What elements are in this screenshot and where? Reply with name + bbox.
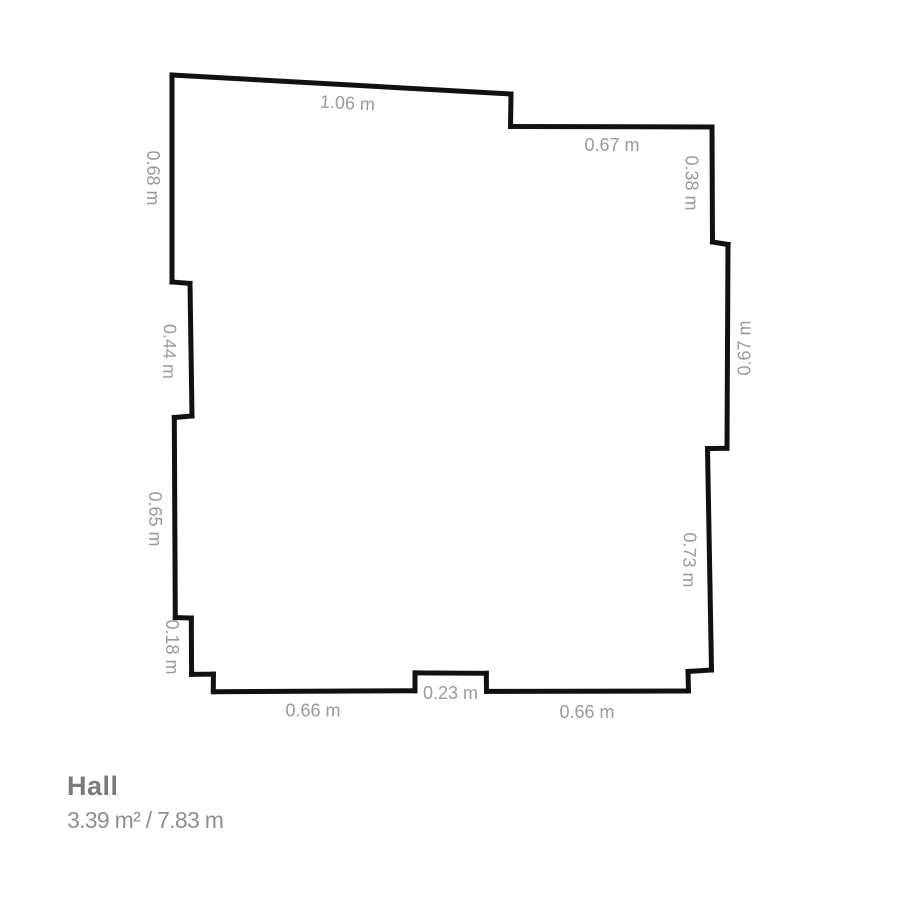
svg-text:0.65 m: 0.65 m (145, 491, 165, 546)
svg-text:0.38 m: 0.38 m (682, 155, 702, 210)
svg-text:0.66 m: 0.66 m (559, 702, 614, 722)
svg-text:0.44 m: 0.44 m (159, 324, 180, 379)
svg-text:0.23 m: 0.23 m (423, 683, 478, 703)
svg-text:Hall: Hall (67, 771, 119, 801)
svg-text:0.67 m: 0.67 m (584, 135, 639, 155)
svg-text:0.18 m: 0.18 m (162, 619, 182, 674)
svg-text:1.06 m: 1.06 m (319, 91, 375, 114)
svg-text:3.39 m² / 7.83 m: 3.39 m² / 7.83 m (67, 807, 223, 833)
svg-text:0.66 m: 0.66 m (285, 701, 340, 721)
svg-text:0.68 m: 0.68 m (143, 150, 163, 205)
svg-text:0.67 m: 0.67 m (735, 320, 755, 375)
svg-text:0.73 m: 0.73 m (679, 532, 700, 587)
